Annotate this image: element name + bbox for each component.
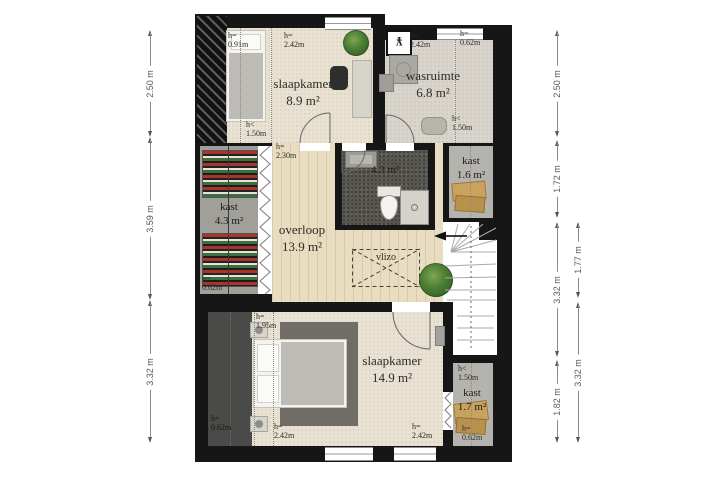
folding-door-strip-left [258,146,272,294]
height-contour-line [254,312,255,446]
desk-icon [352,60,372,118]
room-label-badkamer: 4.3 m² [360,163,410,177]
stool-icon [421,117,447,135]
room-label-overloop: overloop13.9 m² [270,222,334,256]
room-label-kast-bottom: kast1.7 m² [450,386,494,415]
plant-icon [419,263,453,297]
clothes-rack-icon [202,150,258,198]
height-label: h< 1.50m [458,364,478,382]
height-label: h= 0.62m [460,29,480,47]
height-label: h= 2.42m [274,422,294,440]
roof-hatch [197,16,227,143]
door-gap-wasruimte [386,143,414,151]
plant-icon [343,30,369,56]
room-label-slaapkamer-2: slaapkamer14.9 m² [352,353,432,387]
floor-plan: ¥ [0,0,720,480]
height-label: h= 0.62m [202,274,222,292]
mechanical-ventilation-icon: ¥ [386,30,412,56]
room-label-kast-right: kast1.6 m² [449,154,493,183]
door-gap-badkamer [342,143,366,151]
height-label: h= 0.62m [211,414,231,432]
door-gap-slaapkamer-1 [300,143,330,151]
door-gap-slaapkamer-2 [392,302,430,312]
nightstand-icon [250,416,268,432]
cabinet-icon [379,74,394,92]
height-label: h< 1.50m [246,120,266,138]
height-label: h= 1.95m [256,312,276,330]
stairwell-lower [453,302,497,355]
shower-icon [400,190,429,225]
room-label-kast-left: kast4.3 m² [203,200,255,229]
height-label: h= 2.42m [412,422,432,440]
room-label-slaapkamer-1: slaapkamer8.9 m² [258,76,348,110]
height-label: h= 2.42m [284,31,304,49]
height-label: h= 2.42m [410,31,430,49]
height-label: h= 2.30m [276,142,296,160]
height-label: h< 1.50m [452,114,472,132]
window-bottom-right [394,447,436,461]
room-label-wasruimte: wasruimte6.8 m² [398,68,468,102]
vlizo-label: vlizo [352,251,420,264]
bed-icon [253,339,347,408]
window-top-left [325,17,371,30]
height-label: h= 0.62m [462,424,482,442]
wall-stair-corner [479,222,497,240]
window-bottom-left [325,447,373,461]
height-label: h= 0.91m [228,31,248,49]
radiator-icon [435,326,445,346]
